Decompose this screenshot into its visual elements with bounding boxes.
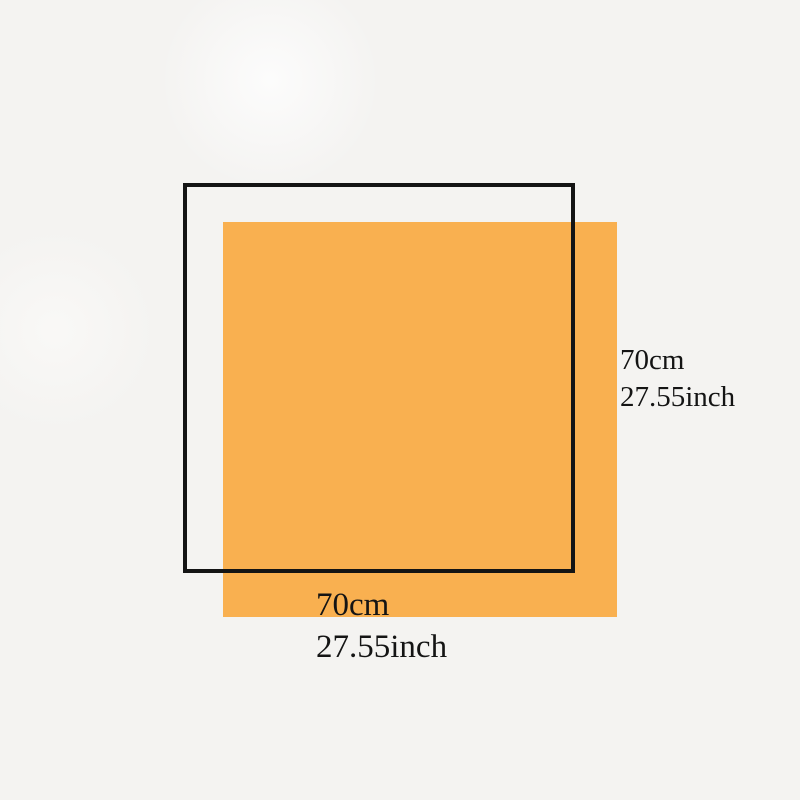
outline-square — [183, 183, 575, 573]
height-cm-label: 70cm — [620, 342, 735, 379]
height-dimension-label: 70cm 27.55inch — [620, 342, 735, 416]
width-dimension-label: 70cm 27.55inch — [316, 584, 447, 668]
height-inch-label: 27.55inch — [620, 379, 735, 416]
width-cm-label: 70cm — [316, 584, 447, 626]
dimension-diagram: 70cm 27.55inch 70cm 27.55inch — [0, 0, 800, 800]
width-inch-label: 27.55inch — [316, 626, 447, 668]
